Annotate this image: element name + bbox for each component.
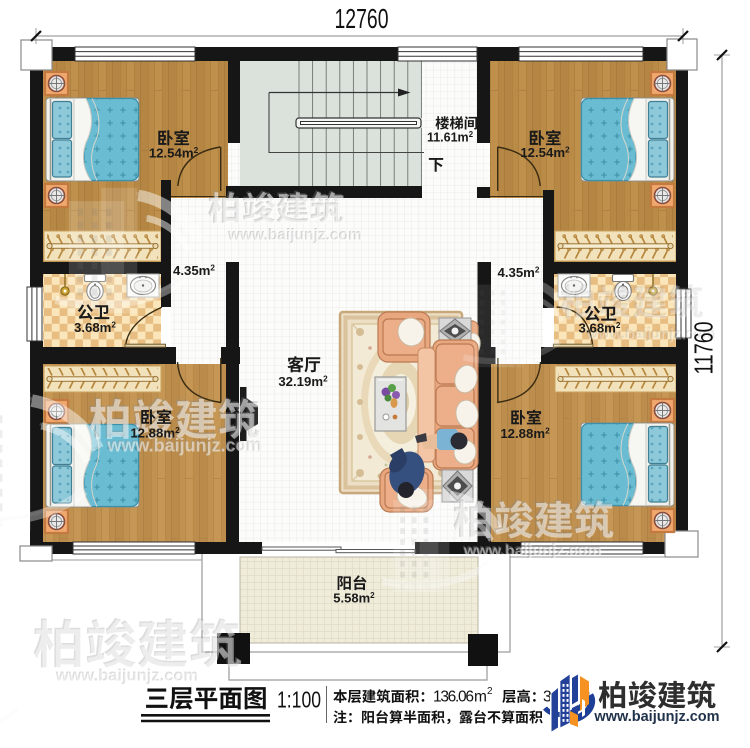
svg-text:3.68m2: 3.68m2 — [579, 321, 621, 336]
svg-text:12.54m2: 12.54m2 — [149, 146, 199, 161]
svg-text:www.baijunjz.com: www.baijunjz.com — [593, 709, 719, 725]
svg-text:136.06: 136.06 — [433, 689, 474, 706]
svg-text:5.58m2: 5.58m2 — [333, 591, 375, 606]
svg-text:1:100: 1:100 — [277, 687, 321, 713]
svg-text:11760: 11760 — [689, 322, 719, 375]
svg-text:m: m — [474, 689, 487, 706]
svg-text:12.88m2: 12.88m2 — [130, 426, 180, 441]
svg-text:11.61m2: 11.61m2 — [427, 130, 474, 144]
svg-text:12.88m2: 12.88m2 — [500, 426, 550, 441]
svg-text:12.54m2: 12.54m2 — [520, 145, 570, 160]
svg-text:12760: 12760 — [335, 3, 389, 34]
svg-text:32.19m2: 32.19m2 — [278, 374, 328, 389]
svg-text:www.baijunjz.com: www.baijunjz.com — [463, 543, 602, 560]
svg-text:www.baijunjz.com: www.baijunjz.com — [56, 668, 199, 686]
svg-text:4.35m2: 4.35m2 — [498, 265, 540, 280]
svg-text:3.68m2: 3.68m2 — [74, 320, 116, 335]
svg-text:2: 2 — [487, 686, 493, 697]
svg-text:4.35m2: 4.35m2 — [173, 263, 215, 278]
svg-text:www.baijunjz.com: www.baijunjz.com — [228, 228, 363, 245]
